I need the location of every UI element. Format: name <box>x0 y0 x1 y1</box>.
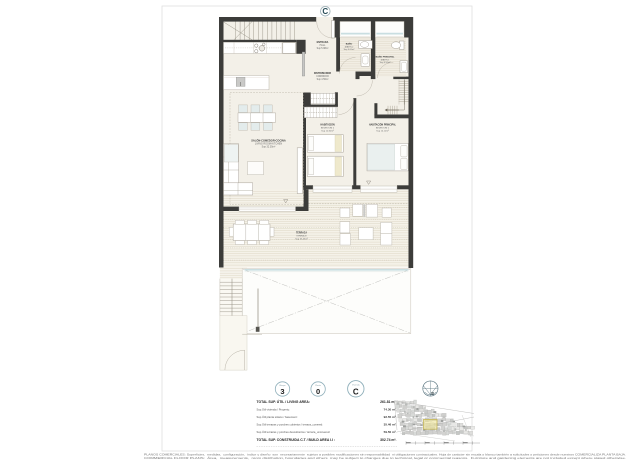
svg-text:TERRACE: TERRACE <box>296 234 307 237</box>
svg-text:0: 0 <box>316 387 320 396</box>
svg-text:59.50 m².: 59.50 m². <box>384 430 397 434</box>
svg-text:261.81 m².: 261.81 m². <box>380 400 396 404</box>
svg-text:Sup.Útil planta sótano / basem: Sup.Útil planta sótano / basement: <box>257 415 298 419</box>
svg-text:PLANOS COMERCIALES: Superficie: PLANOS COMERCIALES: Superficies, medidas… <box>144 453 627 456</box>
svg-text:Sup.Útil terrazas y porches de: Sup.Útil terrazas y porches descubiertos… <box>257 430 331 434</box>
svg-text:(BATH) 2: (BATH) 2 <box>345 45 354 48</box>
svg-text:C: C <box>353 388 359 397</box>
svg-text:BEDROOM 2: BEDROOM 2 <box>321 127 335 129</box>
svg-text:Sup 10.30m²: Sup 10.30m² <box>321 129 334 132</box>
svg-text:DISTRIBUIDOR: DISTRIBUIDOR <box>314 72 332 75</box>
svg-text:HALL: HALL <box>320 44 326 47</box>
svg-text:Sup.Útil terrazas y porches cu: Sup.Útil terrazas y porches cubiertos / … <box>257 422 324 426</box>
svg-text:Sup.Útil vivienda / Property:: Sup.Útil vivienda / Property: <box>257 408 290 412</box>
svg-text:Sup 35.46m²: Sup 35.46m² <box>295 237 308 240</box>
svg-text:Sup 4.50m²: Sup 4.50m² <box>380 61 391 64</box>
svg-text:C: C <box>322 7 328 16</box>
svg-text:S: S <box>431 391 434 396</box>
svg-text:HABITACIÓN PRINCIPAL: HABITACIÓN PRINCIPAL <box>369 124 397 127</box>
svg-text:HABITACIÓN: HABITACIÓN <box>320 124 335 127</box>
svg-text:35.46 m².: 35.46 m². <box>384 422 397 426</box>
svg-text:Sup 14.10m²: Sup 14.10m² <box>376 129 389 132</box>
svg-text:BAÑO PRINCIPAL: BAÑO PRINCIPAL <box>376 56 395 59</box>
svg-text:302.74 m².: 302.74 m². <box>380 438 396 442</box>
svg-text:74.30 m².: 74.30 m². <box>384 408 397 412</box>
svg-text:BAÑO: BAÑO <box>346 43 353 46</box>
svg-text:TOTAL SUP. CONSTRUIDA C.T / BU: TOTAL SUP. CONSTRUIDA C.T / BUILD AREA I… <box>257 438 336 442</box>
svg-text:3: 3 <box>280 387 284 396</box>
svg-text:BEDROOM 1: BEDROOM 1 <box>376 127 390 129</box>
svg-text:92.55 m².: 92.55 m². <box>384 415 397 419</box>
svg-text:TOTAL SUP. ÚTIL / LIVING AREA:: TOTAL SUP. ÚTIL / LIVING AREA: <box>257 399 310 404</box>
svg-text:(BATH) 1: (BATH) 1 <box>381 58 390 61</box>
svg-text:TERRAZA: TERRAZA <box>296 232 307 235</box>
svg-text:Sup 32.35m²: Sup 32.35m² <box>262 146 276 149</box>
svg-text:ENTRADA: ENTRADA <box>317 41 329 44</box>
svg-text:Sup 5.98m²: Sup 5.98m² <box>317 47 329 50</box>
svg-text:Sup 4.00m²: Sup 4.00m² <box>344 48 355 51</box>
svg-text:CORRIDOR: CORRIDOR <box>316 76 329 78</box>
svg-text:COMMERCIAL FLOOR PLANS: Área,: COMMERCIAL FLOOR PLANS: Área, measuremen… <box>144 457 627 460</box>
svg-text:Sup 4.56m²: Sup 4.56m² <box>317 78 329 81</box>
svg-text:Vivienda: Vivienda <box>352 384 361 386</box>
